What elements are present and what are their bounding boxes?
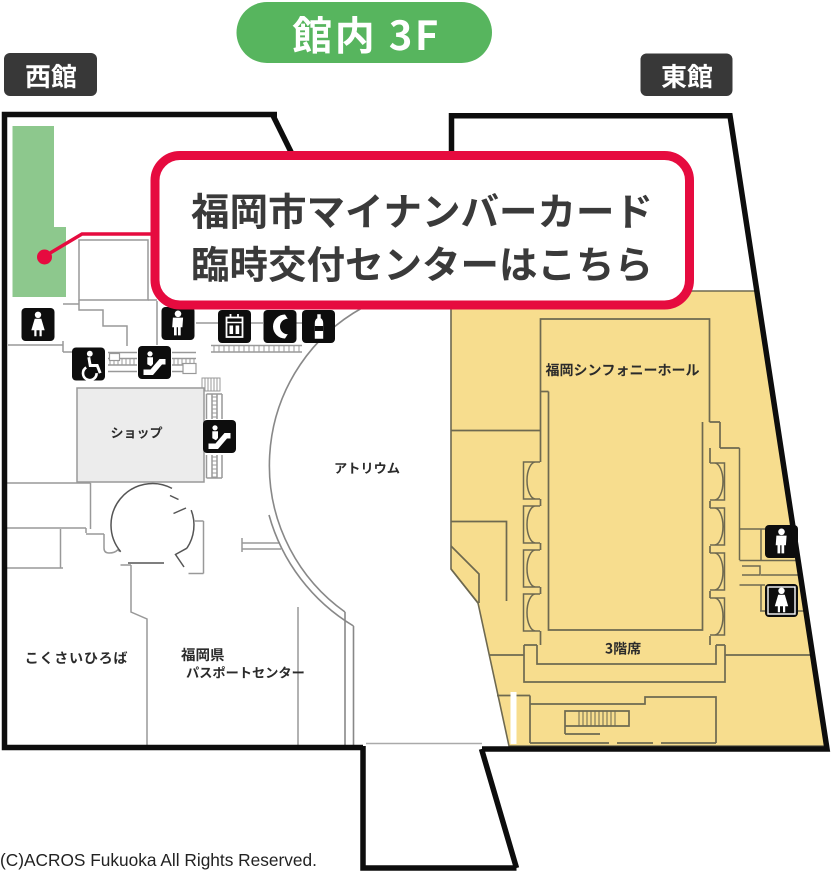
svg-text:(C)ACROS Fukuoka All Rights Re: (C)ACROS Fukuoka All Rights Reserved. bbox=[0, 850, 317, 870]
